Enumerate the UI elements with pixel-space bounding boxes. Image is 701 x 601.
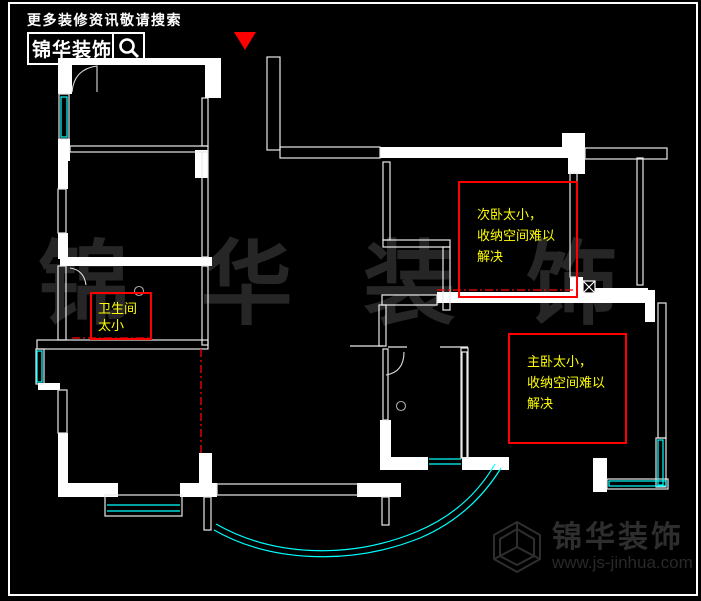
floorplan-page: { "header": { "tagline": "更多装修资讯敬请搜索", "… <box>0 0 701 601</box>
image-border-frame <box>8 2 698 596</box>
